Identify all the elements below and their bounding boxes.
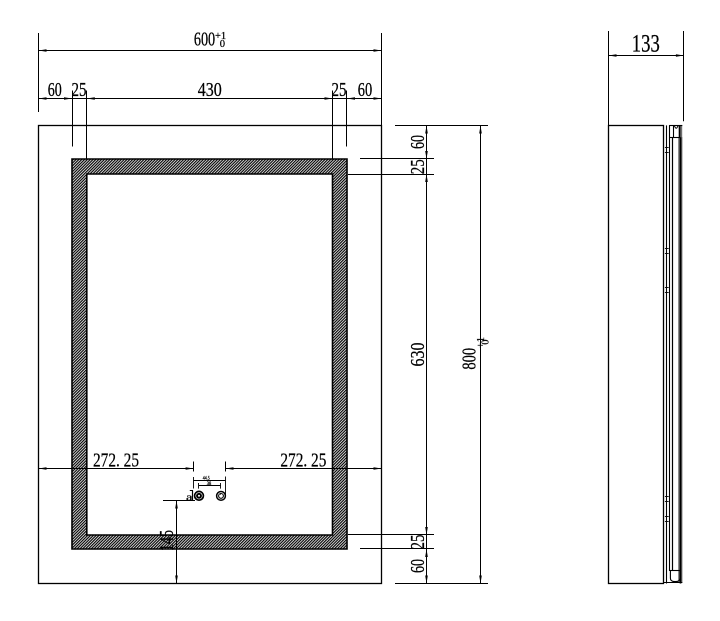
svg-text:630: 630 — [407, 343, 429, 367]
svg-text:430: 430 — [198, 79, 222, 101]
svg-text:60: 60 — [48, 79, 62, 101]
svg-text:272. 25: 272. 25 — [280, 450, 326, 472]
svg-text:25: 25 — [72, 79, 87, 101]
svg-text:800: 800 — [459, 348, 481, 370]
svg-text:25: 25 — [332, 79, 347, 101]
svg-text:a: a — [186, 491, 193, 503]
svg-text:145: 145 — [156, 530, 178, 551]
svg-text:0: 0 — [220, 39, 225, 50]
svg-text:38: 38 — [207, 482, 212, 487]
svg-text:272. 25: 272. 25 — [93, 450, 139, 472]
svg-text:133: 133 — [632, 30, 660, 57]
svg-text:60: 60 — [358, 79, 372, 101]
svg-text:25: 25 — [407, 159, 429, 174]
svg-text:60: 60 — [407, 559, 429, 573]
svg-text:60: 60 — [407, 135, 429, 149]
svg-text:0: 0 — [481, 340, 492, 345]
svg-text:600: 600 — [194, 29, 215, 51]
svg-text:44.5: 44.5 — [203, 476, 210, 481]
svg-text:25: 25 — [407, 535, 429, 550]
